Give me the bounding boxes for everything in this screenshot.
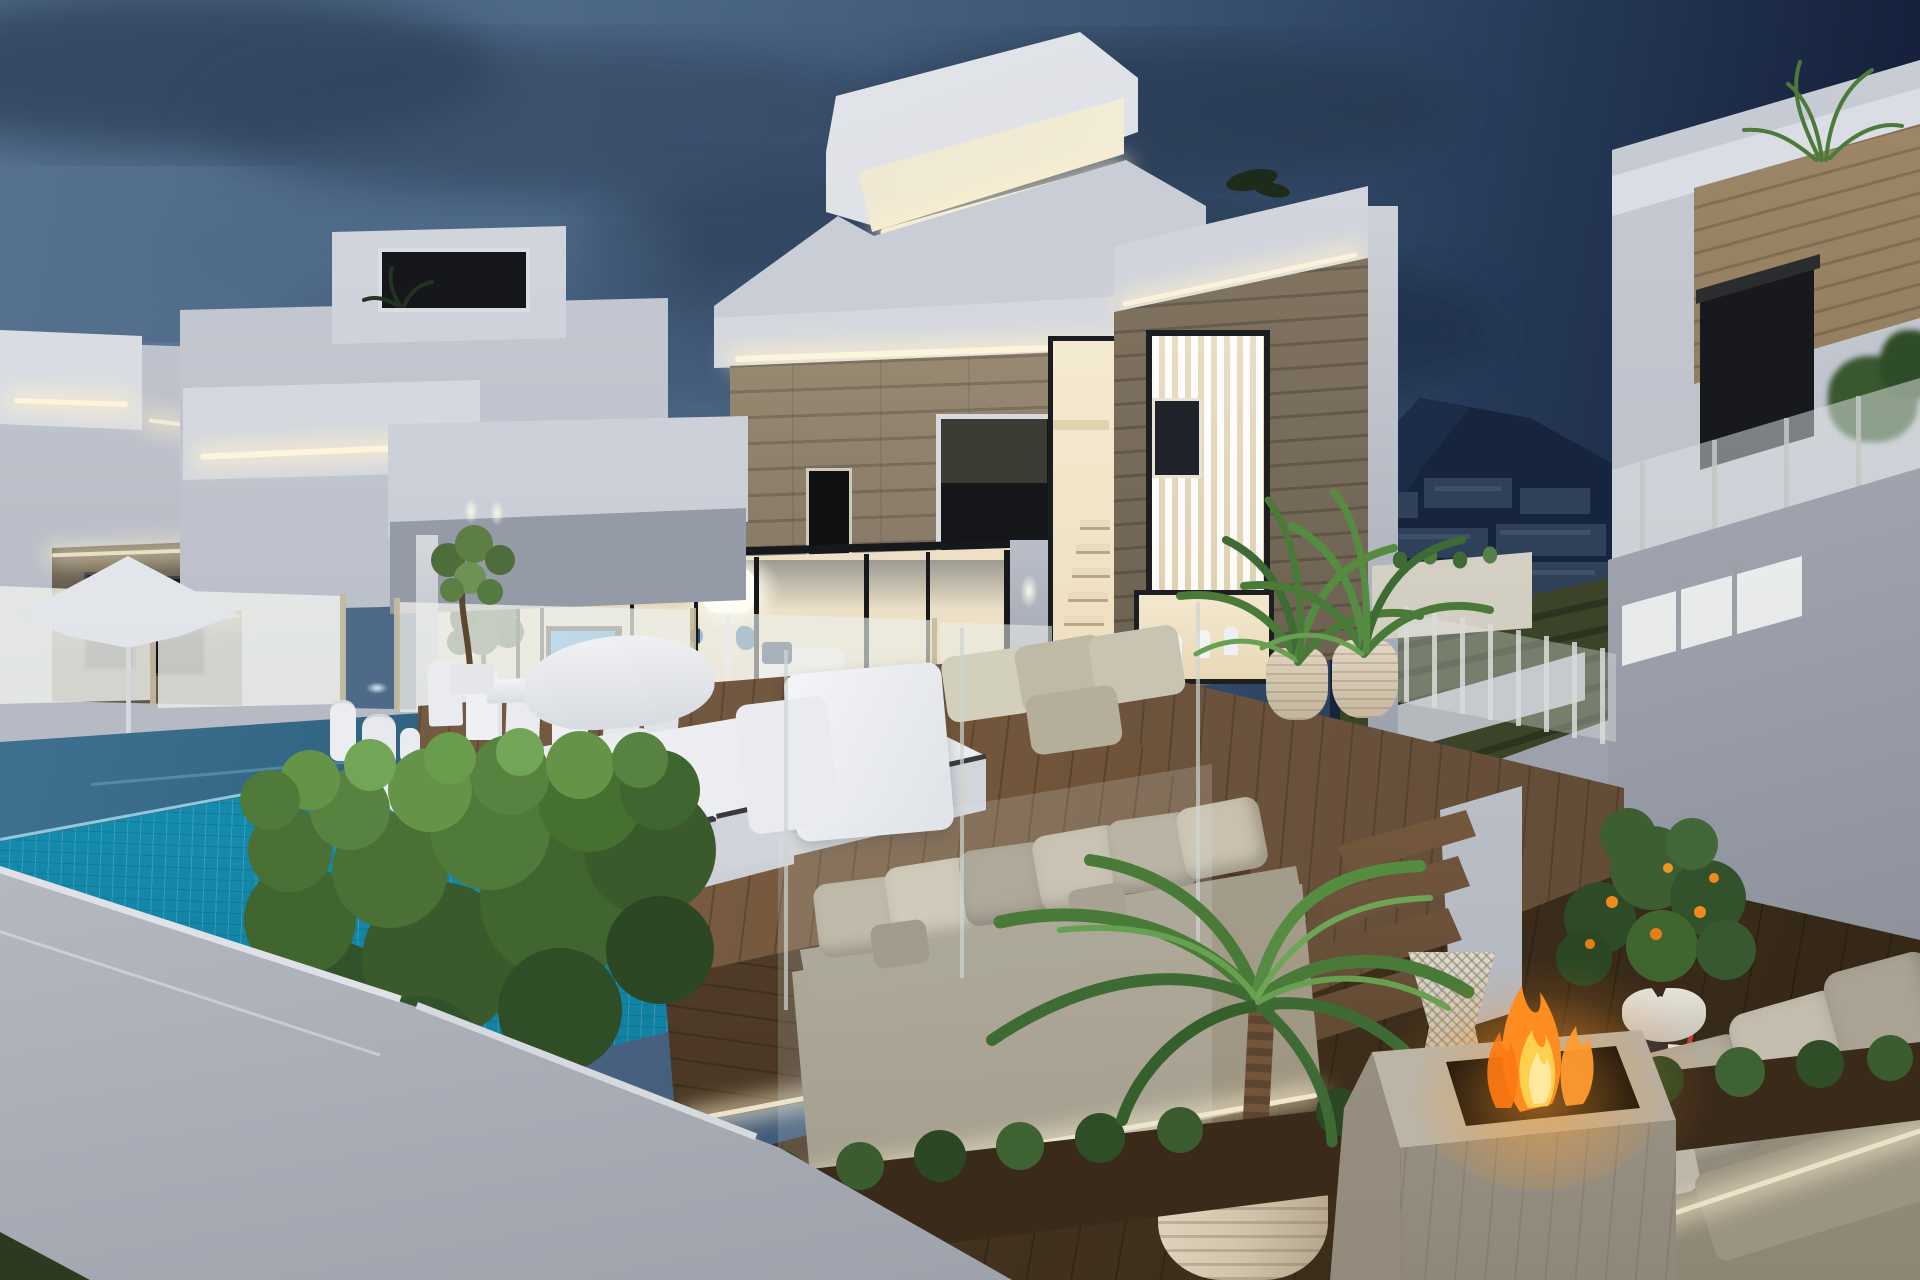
villa-dusk-render: [0, 0, 1920, 1280]
